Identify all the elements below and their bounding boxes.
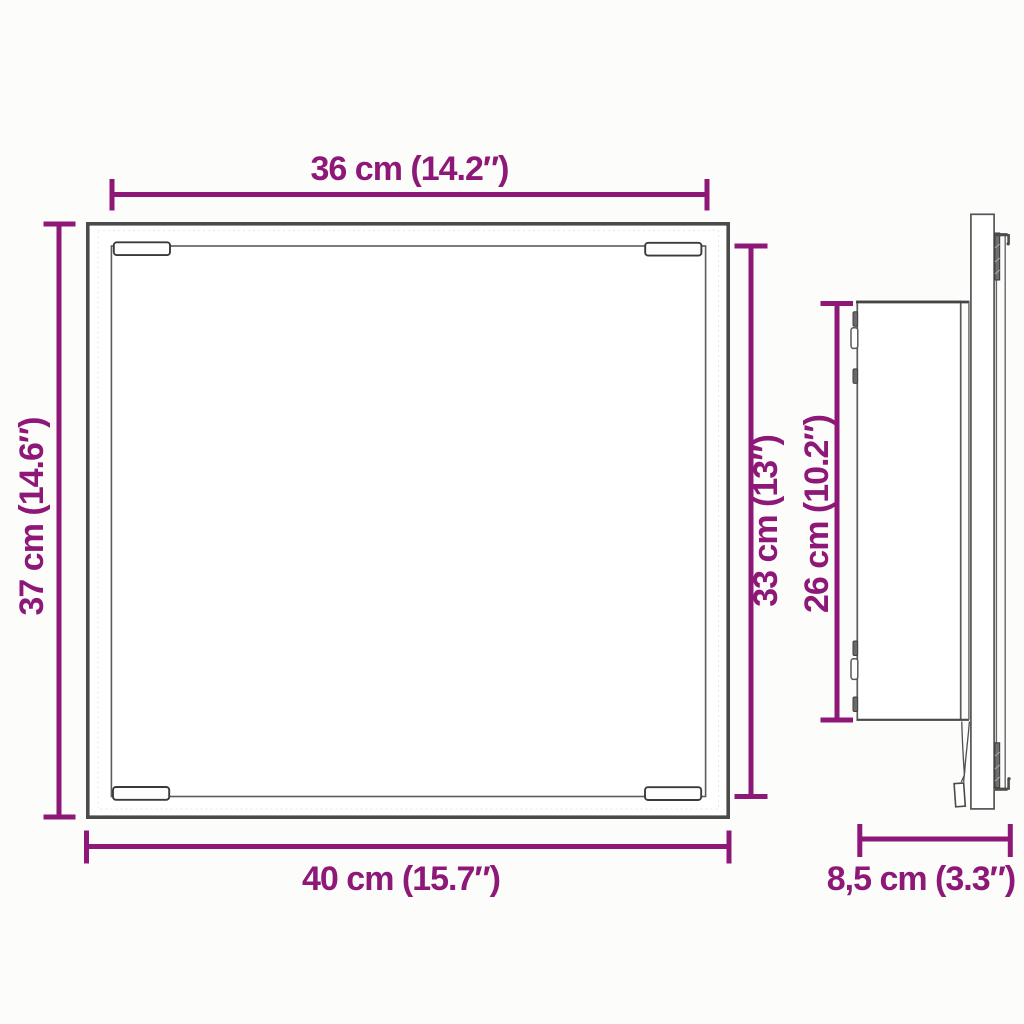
svg-text:37 cm (14.6″): 37 cm (14.6″)	[13, 418, 51, 616]
svg-text:26 cm (10.2″): 26 cm (10.2″)	[798, 415, 836, 613]
svg-text:36 cm (14.2″): 36 cm (14.2″)	[311, 150, 509, 188]
svg-text:40 cm (15.7″): 40 cm (15.7″)	[302, 860, 500, 898]
svg-text:8,5 cm (3.3″): 8,5 cm (3.3″)	[827, 860, 1016, 898]
svg-text:33 cm (13″): 33 cm (13″)	[747, 435, 785, 607]
